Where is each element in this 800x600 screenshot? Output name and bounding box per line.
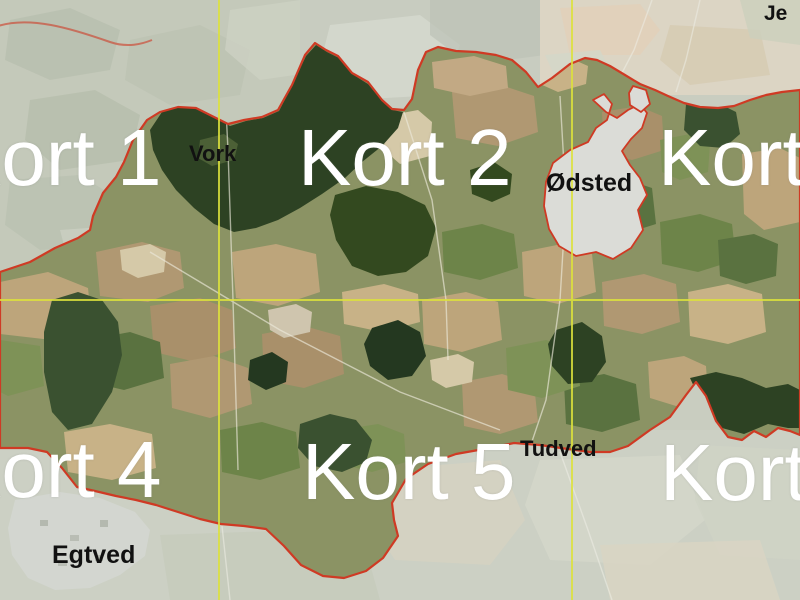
map-sheet-label-kort-1[interactable]: Kort 1: [0, 118, 161, 198]
map-sheet-label-kort-3[interactable]: Kort: [658, 118, 800, 198]
place-label-tudved: Tudved: [520, 438, 597, 460]
place-label-vork: Vork: [189, 143, 236, 165]
map-sheet-label-kort-4[interactable]: Kort 4: [0, 430, 161, 510]
map-sheet-label-kort-2[interactable]: Kort 2: [298, 118, 511, 198]
map-sheet-label-kort-5[interactable]: Kort 5: [302, 432, 515, 512]
place-label-odsted: Ødsted: [546, 171, 632, 196]
map-sheet-label-kort-6[interactable]: Kort: [660, 433, 800, 513]
place-label-egtved: Egtved: [52, 543, 135, 568]
place-label-jerlev-cut: Je: [764, 3, 787, 24]
map-canvas[interactable]: Kort 1 Kort 2 Kort Kort 4 Kort 5 Kort Vo…: [0, 0, 800, 600]
